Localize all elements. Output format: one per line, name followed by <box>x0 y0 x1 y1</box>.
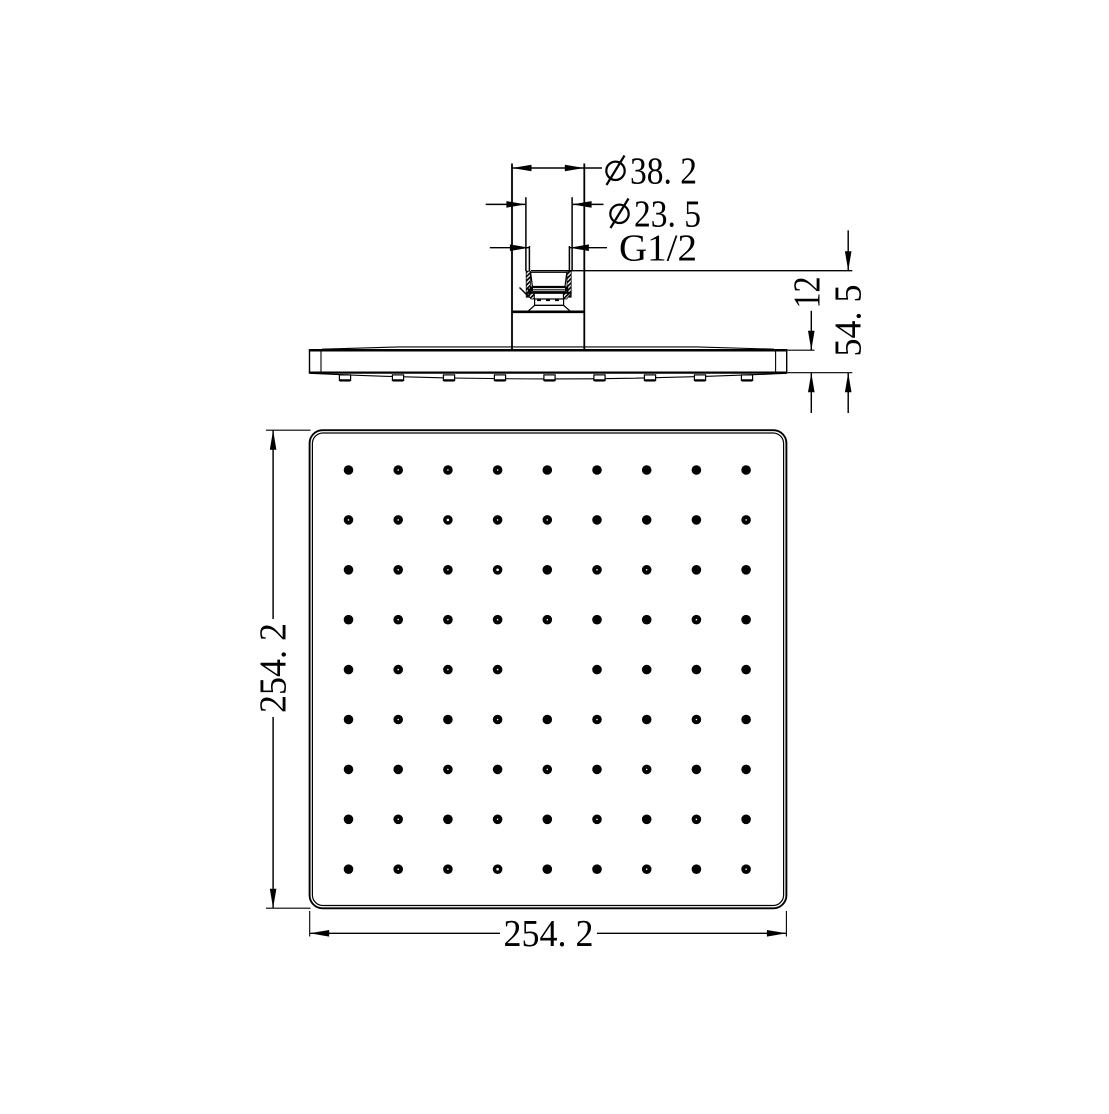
svg-text:G1/2: G1/2 <box>619 228 697 270</box>
svg-text:254. 2: 254. 2 <box>253 623 295 713</box>
svg-text:54. 5: 54. 5 <box>828 285 870 357</box>
svg-text:38. 2: 38. 2 <box>630 151 697 193</box>
svg-text:12: 12 <box>787 277 829 309</box>
svg-text:254. 2: 254. 2 <box>504 913 594 955</box>
